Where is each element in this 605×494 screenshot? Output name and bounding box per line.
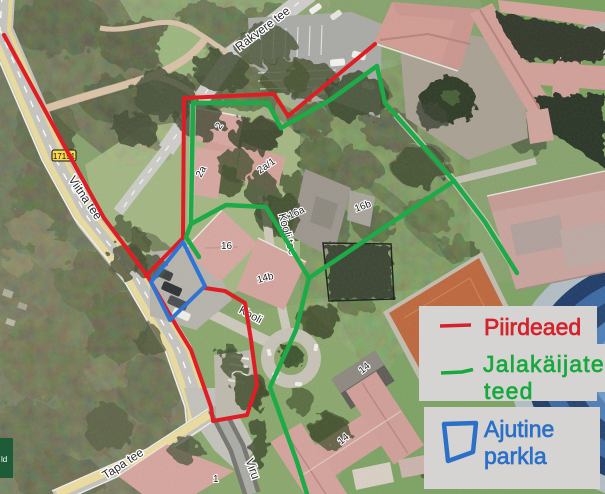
svg-text:16: 16	[221, 241, 233, 252]
svg-text:Jalakäijate: Jalakäijate	[483, 351, 605, 377]
svg-text:parkla: parkla	[484, 443, 547, 469]
svg-text:1: 1	[213, 474, 219, 485]
svg-text:Piirdeaed: Piirdeaed	[484, 314, 581, 340]
svg-text:ld: ld	[1, 455, 7, 464]
svg-text:Ajutine: Ajutine	[484, 416, 554, 442]
svg-text:teed: teed	[484, 378, 534, 404]
